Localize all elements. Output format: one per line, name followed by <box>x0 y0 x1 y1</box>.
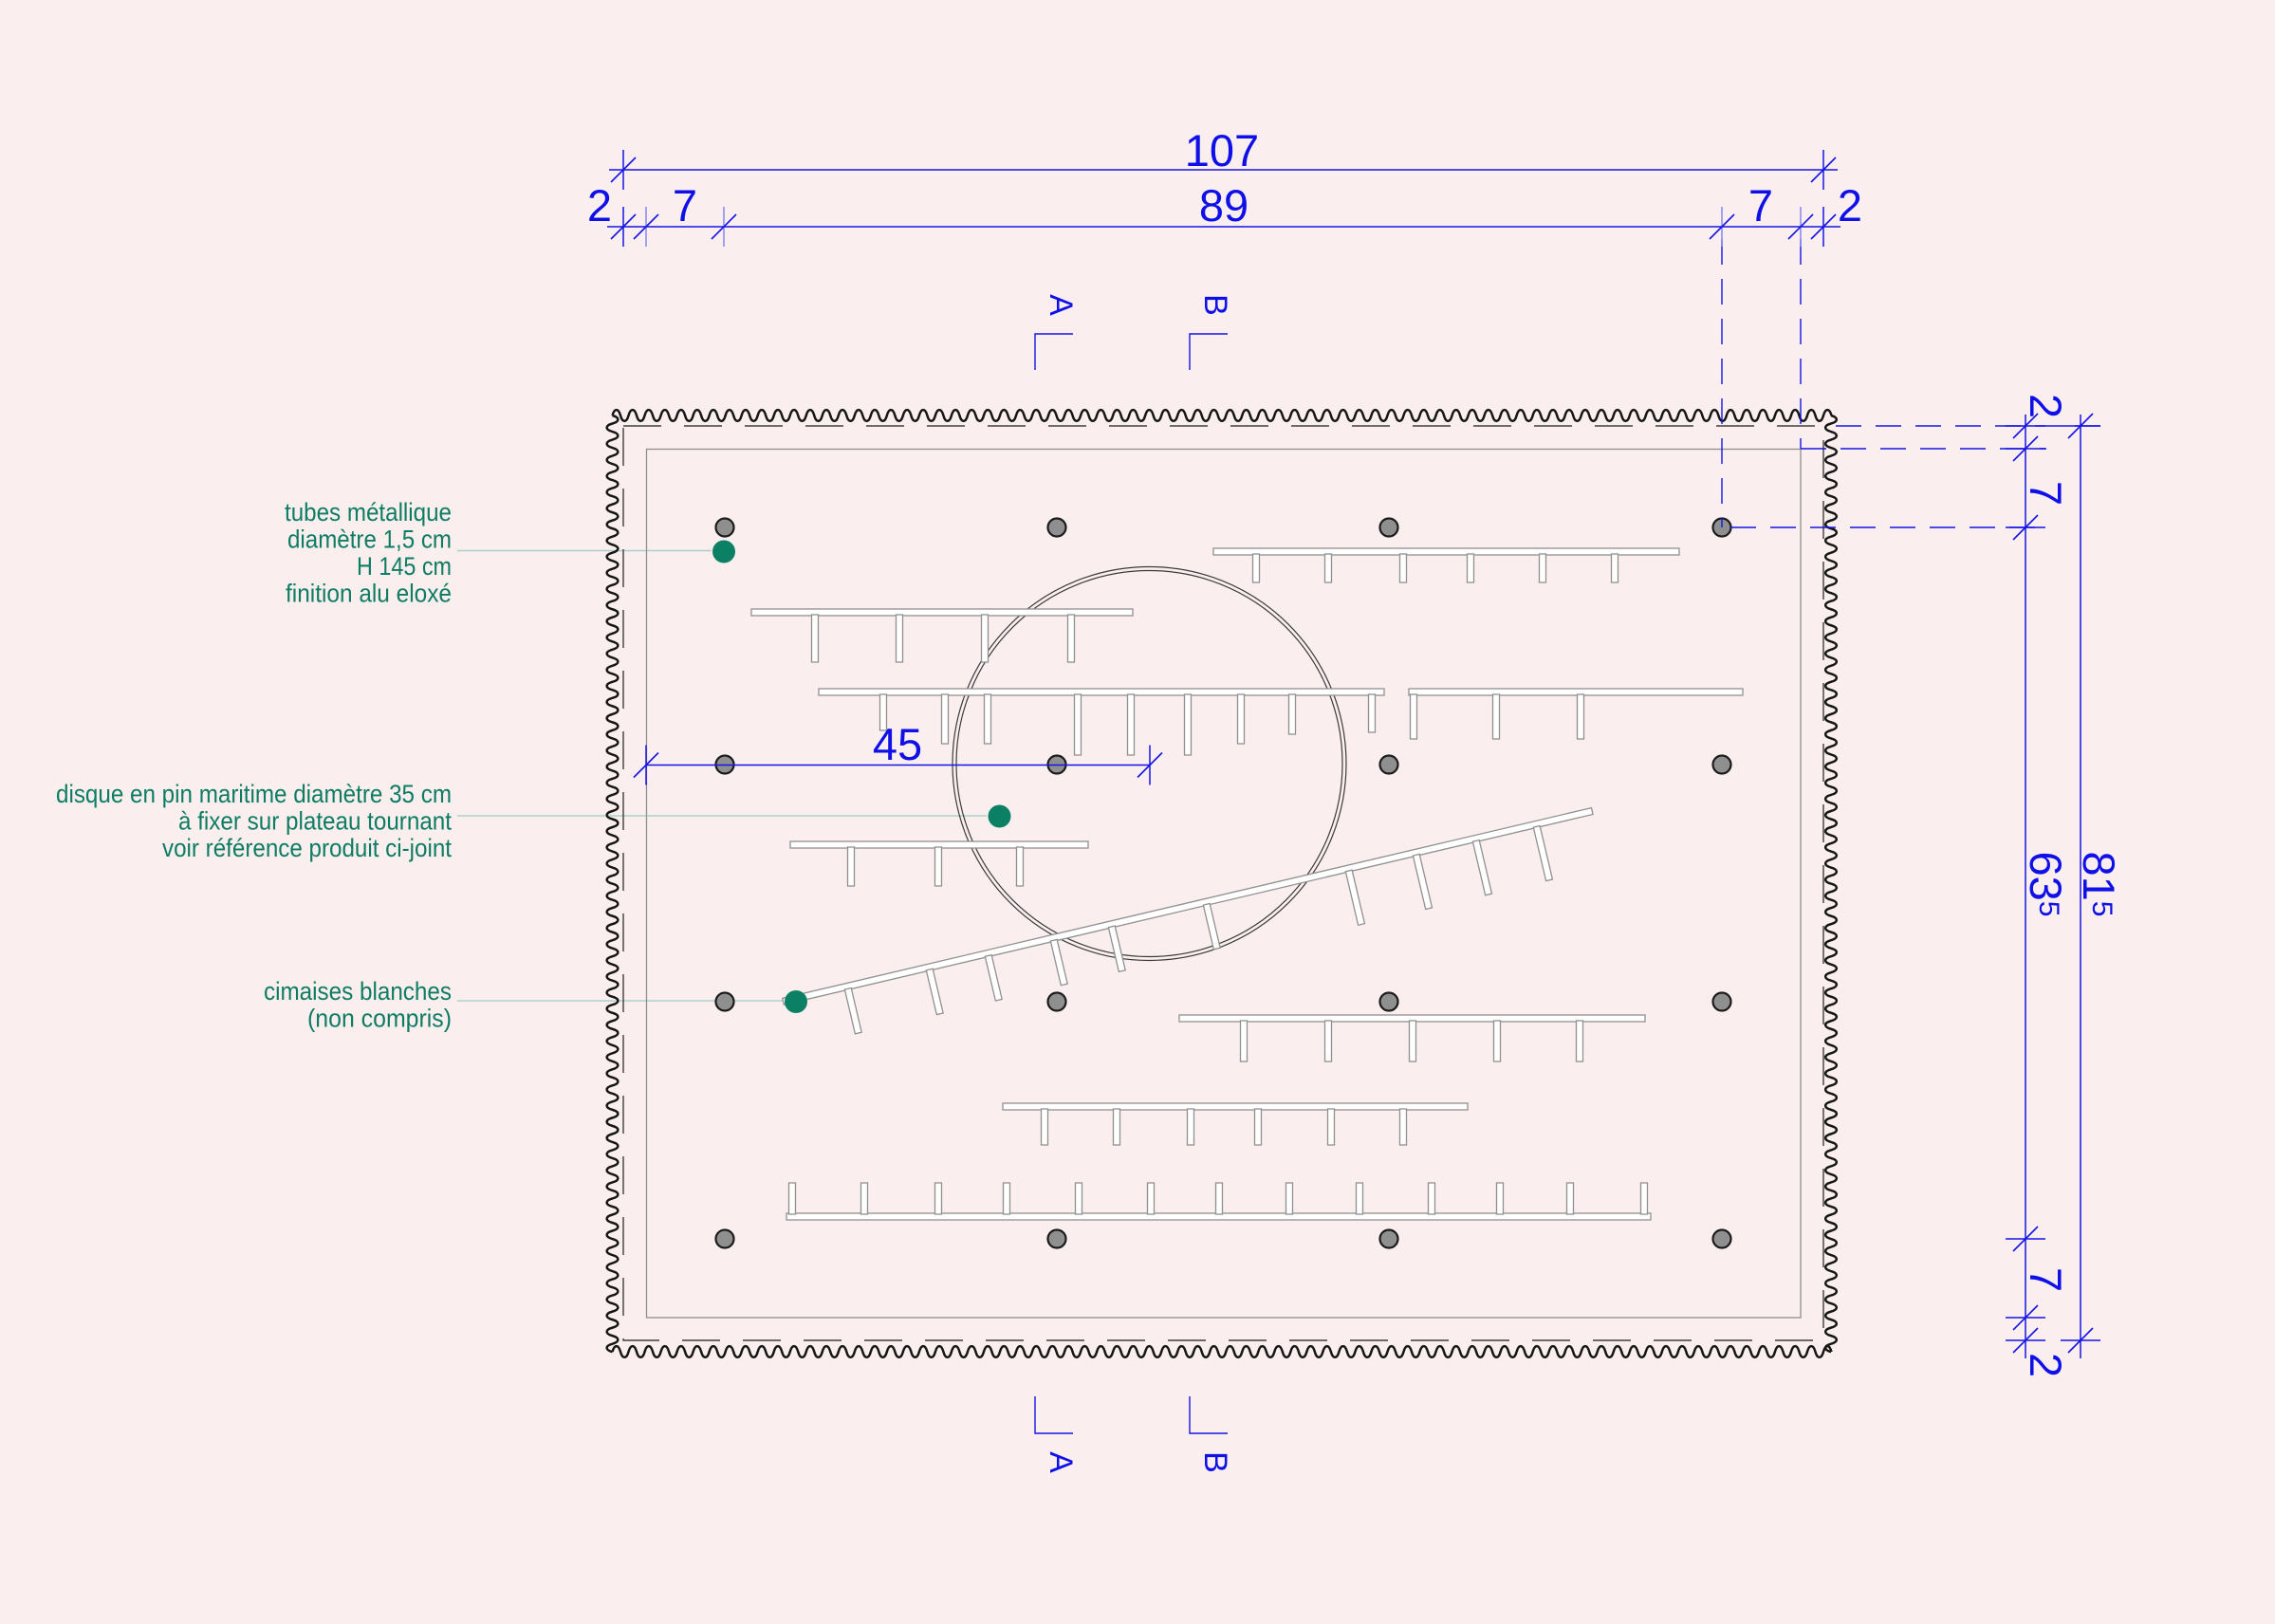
svg-text:2: 2 <box>2021 394 2071 418</box>
svg-text:45: 45 <box>873 719 922 769</box>
svg-text:tubes métallique: tubes métallique <box>285 498 452 526</box>
svg-text:89: 89 <box>1199 180 1248 231</box>
svg-text:à fixer sur plateau tournant: à fixer sur plateau tournant <box>178 807 452 836</box>
svg-text:cimaises blanches: cimaises blanches <box>264 977 452 1006</box>
svg-text:(non compris): (non compris) <box>307 1005 452 1033</box>
svg-text:diamètre 1,5 cm: diamètre 1,5 cm <box>287 526 452 554</box>
svg-text:7: 7 <box>673 180 697 231</box>
svg-text:7: 7 <box>1748 180 1773 231</box>
svg-text:107: 107 <box>1185 125 1259 175</box>
svg-text:disque en pin maritime diamètr: disque en pin maritime diamètre 35 cm <box>56 780 452 808</box>
svg-text:2: 2 <box>1838 180 1862 231</box>
svg-text:finition alu eloxé: finition alu eloxé <box>286 580 452 608</box>
svg-text:7: 7 <box>2021 481 2071 506</box>
svg-text:B: B <box>1197 294 1233 316</box>
svg-text:voir référence produit ci-join: voir référence produit ci-joint <box>162 834 452 862</box>
svg-text:A: A <box>1043 1451 1079 1473</box>
svg-text:2: 2 <box>587 180 612 231</box>
svg-text:A: A <box>1043 294 1079 316</box>
svg-text:B: B <box>1197 1451 1233 1473</box>
svg-text:7: 7 <box>2021 1267 2071 1292</box>
svg-text:2: 2 <box>2021 1353 2071 1377</box>
svg-text:H 145 cm: H 145 cm <box>357 552 452 581</box>
